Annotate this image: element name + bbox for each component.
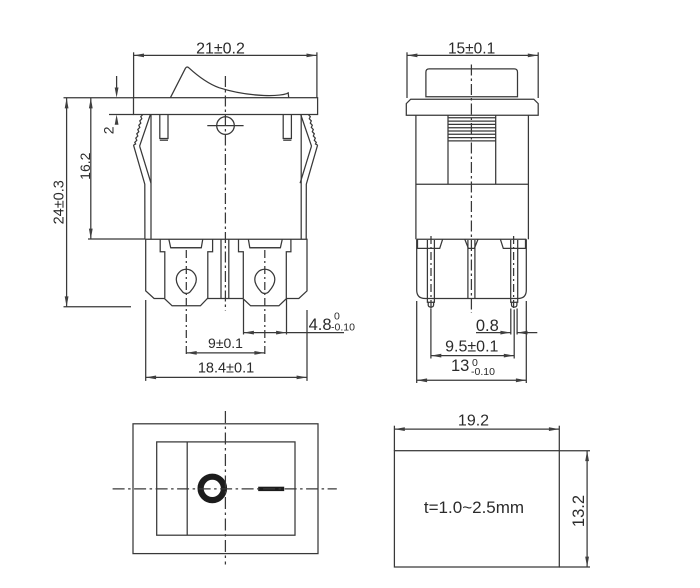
- svg-text:0.8: 0.8: [476, 317, 499, 335]
- svg-text:13: 13: [451, 357, 469, 375]
- svg-text:t=1.0~2.5mm: t=1.0~2.5mm: [424, 498, 524, 517]
- svg-text:9±0.1: 9±0.1: [208, 335, 243, 351]
- svg-text:19.2: 19.2: [458, 413, 489, 430]
- svg-text:24±0.3: 24±0.3: [51, 180, 67, 224]
- svg-text:-0.10: -0.10: [471, 366, 495, 378]
- svg-text:16.2: 16.2: [77, 152, 93, 179]
- svg-text:18.4±0.1: 18.4±0.1: [198, 360, 254, 376]
- svg-text:4.8: 4.8: [309, 316, 332, 334]
- svg-text:2: 2: [101, 126, 117, 134]
- svg-text:9.5±0.1: 9.5±0.1: [445, 338, 498, 355]
- svg-text:21±0.2: 21±0.2: [196, 40, 245, 57]
- svg-text:13.2: 13.2: [570, 495, 588, 527]
- svg-text:15±0.1: 15±0.1: [448, 40, 495, 57]
- svg-text:-0.10: -0.10: [331, 321, 355, 333]
